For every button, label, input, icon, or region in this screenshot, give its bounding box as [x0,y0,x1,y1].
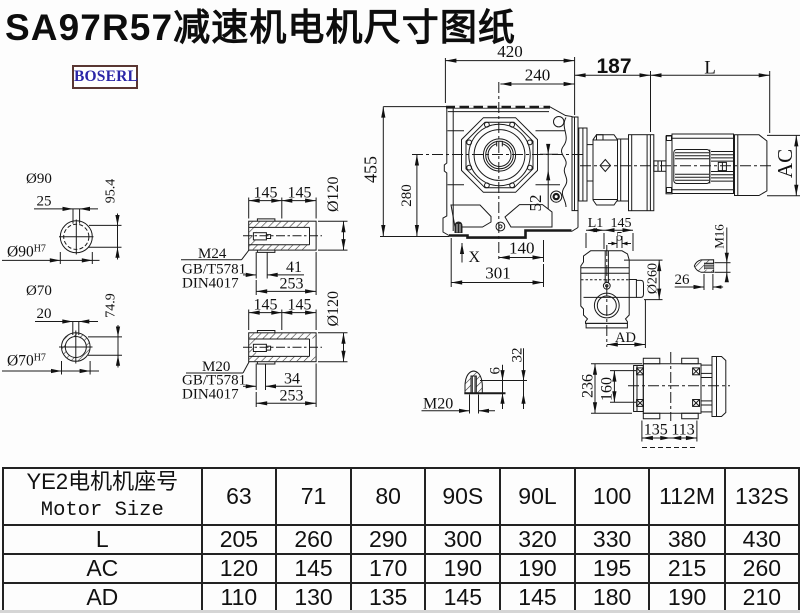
svg-text:32: 32 [510,348,526,363]
svg-text:301: 301 [485,264,511,283]
svg-text:240: 240 [525,66,551,85]
svg-text:135: 135 [644,422,668,439]
svg-text:145: 145 [254,184,278,201]
svg-text:160: 160 [599,377,616,401]
svg-text:L1: L1 [588,216,604,231]
svg-text:Ø120: Ø120 [325,176,342,212]
svg-text:Ø70H7: Ø70H7 [7,353,46,370]
svg-text:145: 145 [288,296,312,313]
svg-text:34: 34 [284,370,300,387]
svg-text:AC: AC [773,149,797,178]
svg-text:41: 41 [286,259,302,276]
svg-text:455: 455 [361,156,381,183]
svg-text:253: 253 [280,275,304,292]
svg-text:L: L [704,58,716,79]
svg-text:145: 145 [254,296,278,313]
svg-text:5: 5 [616,229,623,244]
svg-text:DIN4017: DIN4017 [182,276,239,292]
svg-text:253: 253 [280,387,304,404]
svg-text:Ø90H7: Ø90H7 [7,244,46,261]
svg-text:187: 187 [596,55,631,78]
svg-text:140: 140 [509,239,535,258]
svg-text:DIN4017: DIN4017 [182,387,239,403]
svg-text:20: 20 [37,306,52,322]
svg-text:Ø120: Ø120 [325,291,342,327]
svg-text:6: 6 [488,367,504,375]
svg-text:M20: M20 [423,396,453,413]
svg-text:52: 52 [526,195,545,212]
svg-text:AD: AD [615,330,636,346]
svg-text:M16: M16 [712,224,727,249]
svg-text:X: X [469,249,481,266]
svg-text:95.4: 95.4 [104,179,119,204]
svg-text:145: 145 [288,184,312,201]
svg-text:Ø260: Ø260 [646,263,661,294]
svg-text:26: 26 [675,272,691,288]
svg-text:280: 280 [399,184,415,207]
svg-text:Ø70: Ø70 [26,283,52,299]
svg-text:Ø90: Ø90 [26,171,52,187]
svg-text:236: 236 [580,374,597,398]
svg-text:25: 25 [37,194,52,210]
svg-text:420: 420 [497,42,523,61]
svg-text:74.9: 74.9 [104,293,119,318]
svg-text:113: 113 [671,422,694,439]
